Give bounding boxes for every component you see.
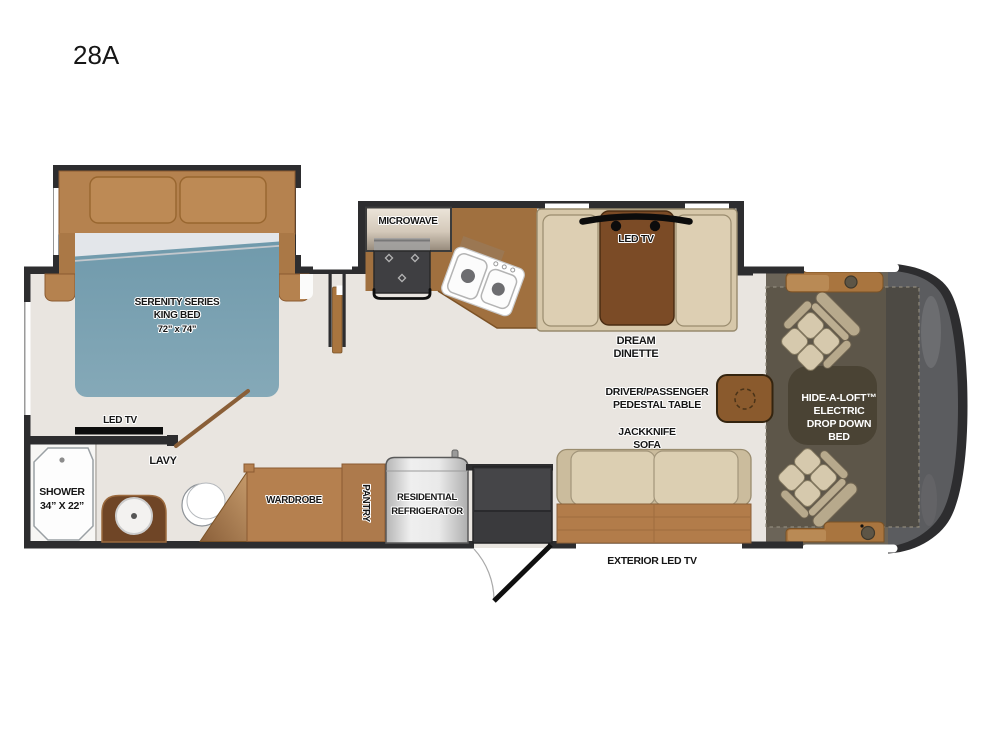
svg-text:WARDROBE: WARDROBE [266, 495, 323, 506]
svg-text:HIDE-A-LOFT™: HIDE-A-LOFT™ [801, 392, 876, 404]
svg-text:PANTRY: PANTRY [360, 484, 371, 522]
svg-text:RESIDENTIAL: RESIDENTIAL [397, 492, 458, 503]
svg-text:LAVY: LAVY [149, 455, 177, 467]
svg-text:28A: 28A [73, 40, 120, 70]
svg-text:72” x 74”: 72” x 74” [158, 324, 197, 335]
svg-text:REFRIGERATOR: REFRIGERATOR [391, 506, 463, 517]
svg-text:LED TV: LED TV [618, 233, 654, 245]
svg-text:DINETTE: DINETTE [614, 348, 659, 360]
svg-text:DROP DOWN: DROP DOWN [807, 418, 872, 430]
svg-text:ELECTRIC: ELECTRIC [814, 405, 866, 417]
svg-text:SERENITY SERIES: SERENITY SERIES [135, 297, 220, 308]
svg-text:LED TV: LED TV [103, 415, 137, 426]
svg-text:JACKKNIFE: JACKKNIFE [618, 426, 676, 438]
svg-text:34” X 22”: 34” X 22” [40, 500, 84, 512]
svg-text:KING BED: KING BED [154, 310, 201, 321]
svg-text:SHOWER: SHOWER [39, 486, 85, 498]
svg-text:PEDESTAL TABLE: PEDESTAL TABLE [613, 399, 701, 411]
svg-text:DREAM: DREAM [617, 335, 656, 347]
svg-text:DRIVER/PASSENGER: DRIVER/PASSENGER [606, 386, 710, 398]
svg-text:EXTERIOR LED TV: EXTERIOR LED TV [607, 555, 697, 567]
svg-text:MICROWAVE: MICROWAVE [378, 216, 438, 227]
svg-text:BED: BED [828, 431, 850, 443]
